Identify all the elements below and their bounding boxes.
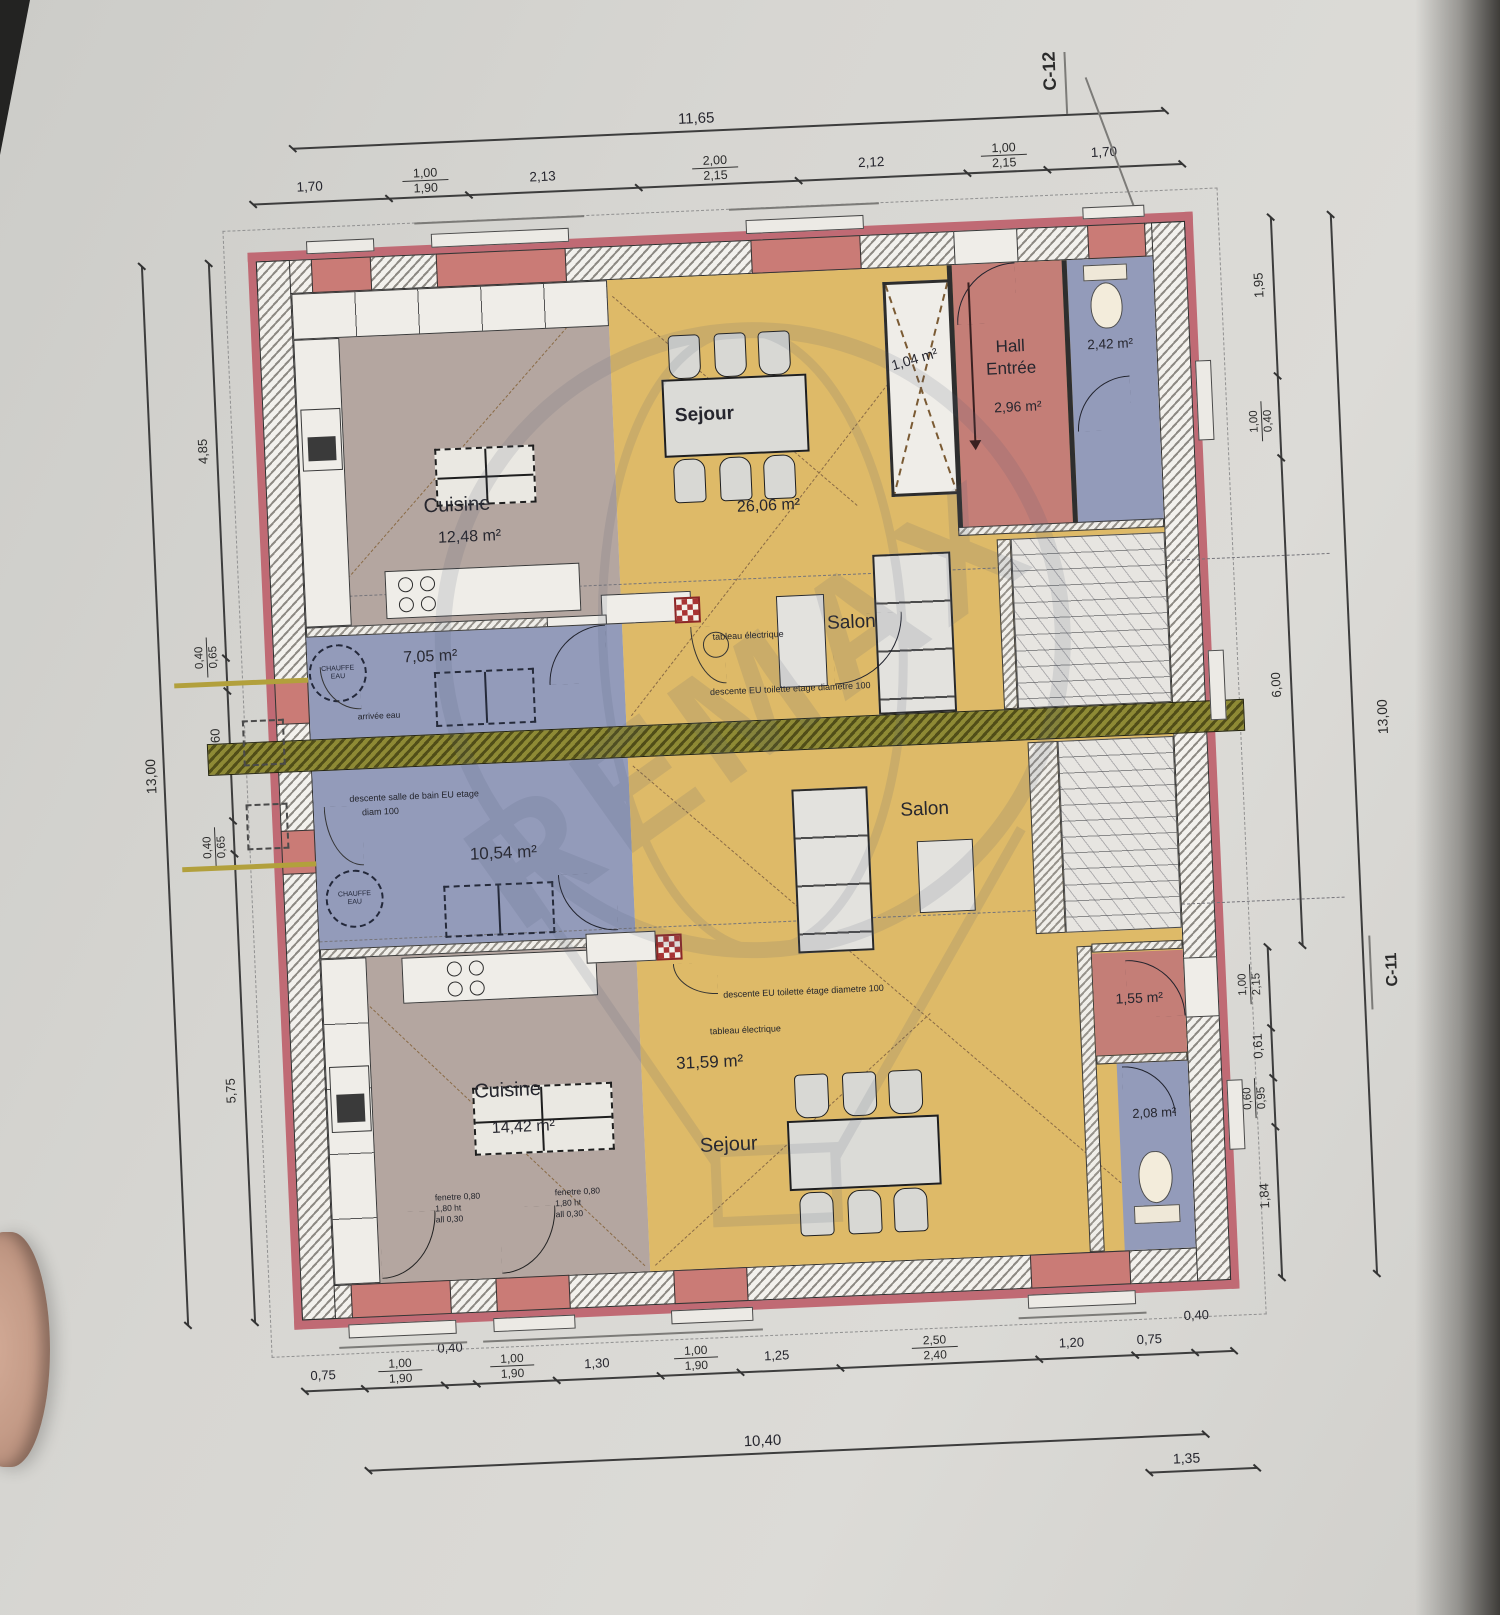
dim-tick	[301, 1387, 309, 1395]
lightwell-dashed-box	[245, 803, 289, 851]
staircase-lower	[1057, 736, 1181, 933]
dim-tick	[229, 817, 237, 825]
dim-label: 1,25	[764, 1347, 790, 1363]
hob-burner-icon	[447, 981, 463, 997]
dim-label: 2,40	[912, 1346, 959, 1363]
window-sill	[1226, 1079, 1245, 1150]
appliance-dashed-box	[434, 668, 536, 727]
dim-label: 5,75	[223, 1078, 239, 1104]
window-segment	[1087, 223, 1146, 259]
armchair-upper	[776, 594, 828, 688]
vent-grille	[585, 931, 656, 964]
stair-dashes	[1012, 533, 1171, 707]
shaft-x-icon	[885, 282, 956, 494]
dim-tick	[963, 169, 971, 177]
dim-tick	[222, 654, 230, 662]
window-segment	[1030, 1250, 1131, 1288]
window-segment	[311, 256, 372, 293]
window-segment	[673, 1267, 748, 1304]
section-mark-c11: C-11	[1383, 952, 1402, 987]
dim-tick	[1131, 1350, 1139, 1358]
dim-label: 1,90	[674, 1356, 719, 1373]
hob-burner-icon	[420, 576, 436, 592]
room-area: 26,06 m²	[737, 496, 801, 517]
dim-tick	[1267, 1024, 1275, 1032]
box-divider	[484, 672, 488, 723]
dim-label: 0,61	[1250, 1033, 1266, 1059]
dim-tick	[473, 1379, 481, 1387]
dim-fraction: 0,600,95	[1241, 1078, 1270, 1119]
dim-label: 2,15	[981, 154, 1028, 171]
section-line	[1063, 52, 1068, 114]
window-segment	[436, 248, 567, 288]
dim-fraction: 1,002,15	[980, 140, 1027, 171]
dim-tick	[836, 1363, 844, 1371]
annotation: arrivée eau	[358, 710, 401, 722]
dining-chair	[673, 458, 707, 503]
dim-line-right-overall	[1330, 215, 1378, 1274]
dim-label: 10,40	[743, 1432, 781, 1451]
dim-tick	[1202, 1429, 1210, 1437]
annotation: all 0,30	[555, 1207, 601, 1220]
window-sill	[1208, 650, 1227, 721]
dim-label: 0,75	[1136, 1331, 1162, 1347]
section-mark-c12: C-12	[1038, 51, 1061, 91]
dim-tick	[1263, 943, 1271, 951]
dim-tick	[635, 183, 643, 191]
room-name: Sejour	[699, 1132, 758, 1157]
dim-fraction: 2,002,15	[692, 152, 739, 183]
dining-table-lower	[787, 1115, 942, 1192]
dim-tick	[1035, 1355, 1043, 1363]
dim-tick	[205, 259, 213, 267]
sofa-lower	[791, 786, 874, 953]
dim-tick	[1267, 213, 1275, 221]
dim-line-bottom-offset	[1149, 1467, 1257, 1473]
dim-tick	[1253, 1463, 1261, 1471]
dim-tick	[553, 1376, 561, 1384]
dim-tick	[1277, 454, 1285, 462]
dim-tick	[1145, 1468, 1153, 1476]
dim-tick	[1278, 1273, 1286, 1281]
dim-tick	[361, 1384, 369, 1392]
chauffe-eau-label: EAU	[348, 898, 363, 907]
toilet-tank-lower	[1134, 1204, 1181, 1224]
dim-label: 1,70	[296, 178, 323, 194]
dim-label: 13,00	[1374, 699, 1392, 735]
dim-tick	[184, 1321, 192, 1329]
room-name: Sejour	[674, 403, 734, 428]
window-sill	[1195, 360, 1214, 441]
dining-chair	[847, 1189, 883, 1234]
dim-label: 0,65	[214, 827, 230, 868]
kitchen-counter-hob	[401, 949, 598, 1003]
room-area: 14,42 m²	[491, 1117, 555, 1138]
box-divider	[497, 885, 501, 933]
staircase-upper	[1011, 532, 1172, 709]
stair-dashes	[1059, 737, 1181, 932]
dining-chair	[719, 456, 753, 501]
dim-fraction: 1,001,90	[673, 1342, 718, 1373]
door-opening	[1183, 956, 1220, 1017]
appliance-dashed-box	[443, 881, 555, 938]
room-name: Cuisine	[423, 492, 491, 518]
hob-burner-icon	[469, 980, 485, 996]
room-name: Salon	[900, 798, 950, 822]
dim-label: 0,65	[206, 637, 222, 678]
dim-tick	[289, 144, 297, 152]
dim-label: 1,30	[584, 1355, 610, 1371]
page-corner-shadow	[0, 0, 30, 155]
window-segment	[750, 235, 861, 274]
section-line	[1368, 936, 1373, 1010]
hob-burner-icon	[421, 596, 437, 612]
dim-label: 2,15	[1249, 964, 1265, 1005]
entry-arrow-head	[969, 440, 981, 451]
dim-tick	[138, 262, 146, 270]
dining-chair	[763, 454, 797, 499]
dim-label: 6,00	[1268, 672, 1284, 698]
dim-tick	[249, 200, 257, 208]
photographer-finger	[0, 1232, 50, 1467]
dim-label: 2,15	[692, 166, 739, 183]
floor-plan-sheet: 11,65 1,70 1,001,90 2,13 2,002,15 2,12 1…	[78, 32, 1442, 1577]
dim-fraction: 0,400,65	[193, 637, 222, 678]
dim-label: 1,20	[1058, 1334, 1084, 1350]
dining-chair	[713, 332, 747, 377]
fenetre-annotation: fenetre 0,80 1,80 ht all 0,30	[554, 1185, 601, 1220]
annotation: diam 100	[362, 806, 399, 818]
dim-fraction: 1,001,90	[402, 165, 449, 196]
dim-tick	[385, 194, 393, 202]
dim-tick	[657, 1371, 665, 1379]
lightwell-dashed-box	[242, 719, 286, 767]
dim-fraction: 1,001,90	[490, 1350, 535, 1381]
dim-tick	[737, 1368, 745, 1376]
photographed-floor-plan: 11,65 1,70 1,001,90 2,13 2,002,15 2,12 1…	[0, 0, 1500, 1615]
dining-chair	[888, 1069, 924, 1114]
dim-label: 0,40	[1183, 1307, 1209, 1323]
dim-label: 4,85	[195, 439, 211, 465]
dim-label: 1,90	[378, 1369, 423, 1386]
dim-tick	[1161, 106, 1169, 114]
dim-line-bottom-overall	[369, 1433, 1206, 1471]
dim-tick	[223, 687, 231, 695]
dim-label: 1,90	[402, 179, 449, 196]
dim-fraction: 2,502,40	[911, 1332, 958, 1363]
dim-line-right-upper	[1270, 217, 1303, 945]
dining-chair	[799, 1191, 835, 1236]
dim-tick	[441, 1381, 449, 1389]
kitchen-counter-hob	[384, 563, 581, 619]
toilet-tank-upper	[1083, 263, 1128, 281]
dim-fraction: 1,000,40	[1247, 401, 1276, 442]
dim-label: 11,65	[678, 109, 715, 128]
oven-icon	[308, 436, 337, 461]
dim-tick	[1191, 1348, 1199, 1356]
dim-label: 2,12	[858, 154, 885, 170]
dim-tick	[1373, 1269, 1381, 1277]
window-segment	[495, 1275, 570, 1312]
descente-marker-upper	[674, 596, 701, 623]
hob-burner-icon	[447, 961, 463, 977]
dim-label: 2,13	[529, 168, 556, 184]
dim-tick	[1230, 1346, 1238, 1354]
dim-tick	[1274, 372, 1282, 380]
descente-marker-lower	[656, 934, 683, 961]
dim-fraction: 1,001,90	[378, 1355, 423, 1386]
fenetre-annotation: fenetre 0,80 1,80 ht all 0,30	[435, 1191, 482, 1226]
dim-label: 1,35	[1173, 1449, 1201, 1466]
dim-label: 0,95	[1254, 1078, 1270, 1119]
dining-chair	[794, 1073, 830, 1118]
dim-tick	[230, 850, 238, 858]
room-area: 12,48 m²	[438, 527, 502, 548]
dim-tick	[1178, 159, 1186, 167]
annotation: all 0,30	[436, 1213, 482, 1226]
dim-tick	[1298, 941, 1306, 949]
dining-chair	[757, 330, 791, 375]
dining-chair	[893, 1187, 929, 1232]
dim-label: 1,95	[1250, 272, 1266, 298]
door-opening	[953, 228, 1018, 265]
dim-line-left-overall	[141, 266, 189, 1325]
hob-burner-icon	[398, 577, 414, 593]
dim-label: 13,00	[142, 759, 160, 795]
dining-chair	[842, 1071, 878, 1116]
dim-tick	[465, 190, 473, 198]
dim-fraction: 1,002,15	[1236, 964, 1265, 1005]
room-area: 7,05 m²	[403, 647, 458, 667]
dim-label: 1,84	[1256, 1183, 1272, 1209]
room-area: 10,54 m²	[469, 842, 537, 865]
hob-burner-icon	[469, 960, 485, 976]
dim-fraction: 0,400,65	[201, 827, 230, 868]
dim-tick	[1327, 210, 1335, 218]
dim-tick	[251, 1318, 259, 1326]
dim-line-top-overall	[293, 110, 1165, 150]
dim-tick	[795, 176, 803, 184]
room-name: Cuisine	[474, 1078, 542, 1104]
dim-label: 1,90	[490, 1364, 535, 1381]
dim-tick	[1271, 1123, 1279, 1131]
hob-burner-icon	[399, 597, 415, 613]
armchair-lower	[917, 839, 976, 913]
dim-tick	[1043, 165, 1051, 173]
dim-tick	[364, 1466, 372, 1474]
dim-tick	[1269, 1074, 1277, 1082]
room-area: 31,59 m²	[676, 1051, 744, 1074]
oven-icon	[336, 1094, 365, 1123]
dim-label: 0,75	[310, 1367, 336, 1383]
window-segment	[351, 1280, 452, 1318]
dining-chair	[667, 334, 701, 379]
dim-label: 0,40	[1260, 401, 1276, 442]
